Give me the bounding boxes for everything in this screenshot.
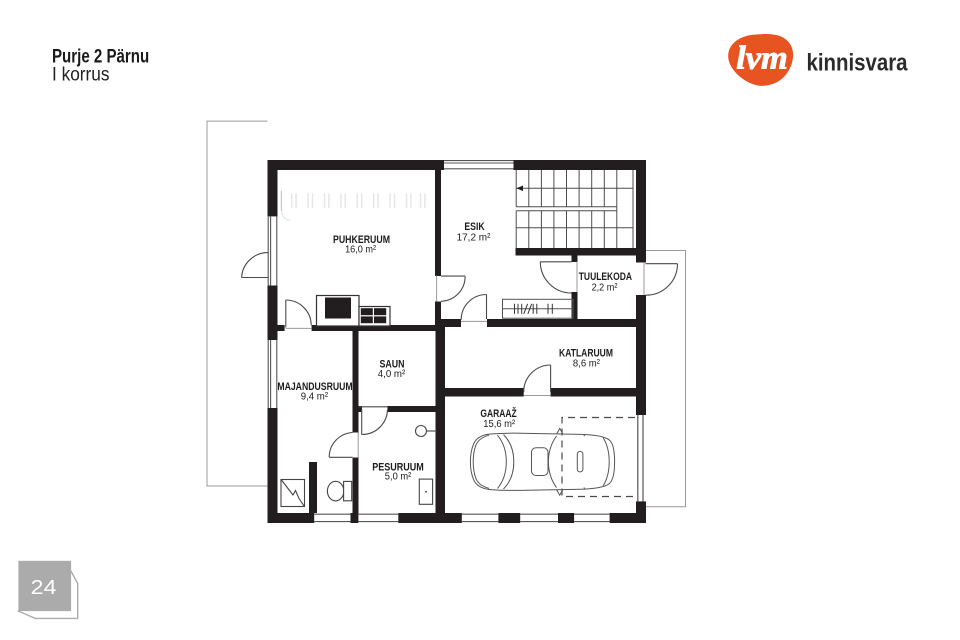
svg-text:kinnisvara: kinnisvara [807, 50, 909, 77]
svg-text:5,0 m²: 5,0 m² [385, 472, 412, 483]
svg-text:lvm: lvm [736, 40, 788, 76]
svg-text:GARAAŽ: GARAAŽ [480, 407, 517, 420]
svg-text:2,2 m²: 2,2 m² [592, 283, 618, 294]
svg-text:TUULEKODA: TUULEKODA [579, 271, 632, 283]
svg-text:I korrus: I korrus [52, 65, 110, 86]
svg-text:15,6 m²: 15,6 m² [483, 419, 516, 430]
svg-text:4,0 m²: 4,0 m² [378, 369, 406, 380]
svg-text:8,6 m²: 8,6 m² [573, 358, 601, 369]
svg-text:17,2 m²: 17,2 m² [457, 233, 491, 244]
svg-text:16,0 m²: 16,0 m² [345, 245, 377, 256]
svg-text:24: 24 [31, 576, 57, 599]
svg-text:ESIK: ESIK [464, 221, 484, 233]
svg-text:9,4 m²: 9,4 m² [301, 392, 329, 403]
